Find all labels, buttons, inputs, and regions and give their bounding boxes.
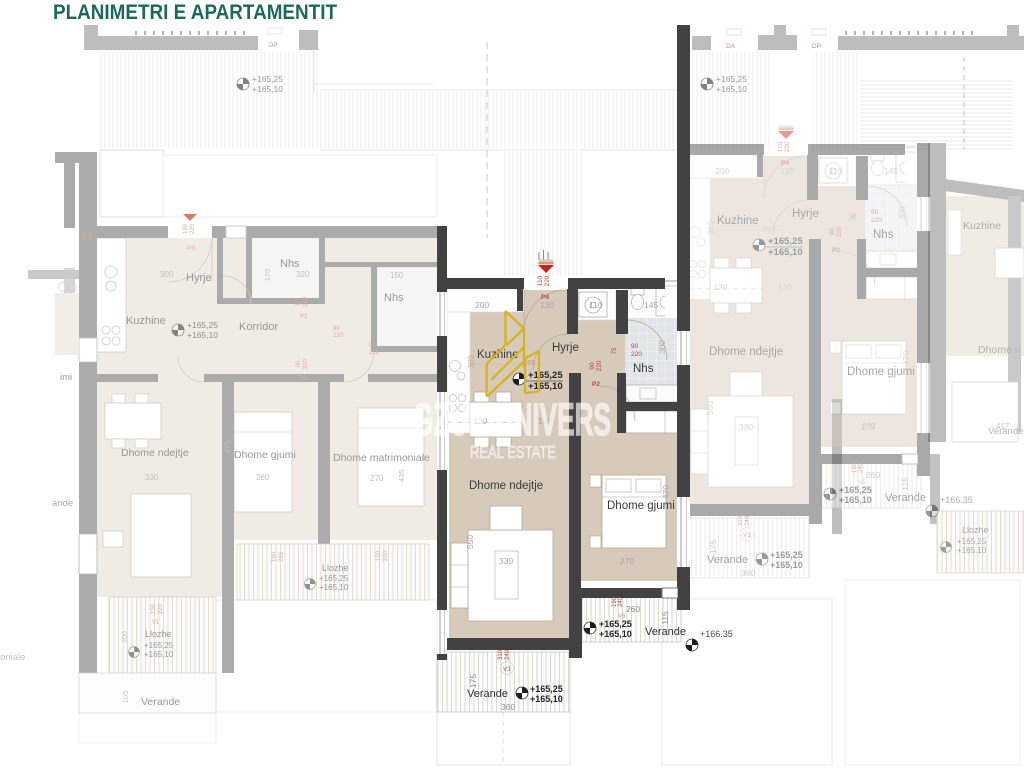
svg-text:+165,10: +165,10: [252, 84, 283, 94]
svg-text:320: 320: [296, 270, 310, 279]
svg-text:Llozhe: Llozhe: [145, 629, 172, 639]
svg-text:P2: P2: [300, 376, 308, 382]
svg-text:Dhome ndejtje: Dhome ndejtje: [121, 447, 189, 459]
svg-text:Llozhe: Llozhe: [962, 525, 989, 535]
svg-text:+165,10: +165,10: [144, 650, 174, 659]
svg-text:170: 170: [263, 269, 272, 282]
svg-text:220: 220: [279, 551, 285, 562]
svg-text:P3: P3: [187, 245, 195, 252]
svg-text:imi: imi: [60, 372, 72, 383]
svg-text:Korridor: Korridor: [239, 321, 278, 333]
svg-text:90: 90: [369, 343, 376, 349]
svg-text:190: 190: [151, 603, 157, 614]
svg-text:Hyrje: Hyrje: [186, 272, 212, 284]
svg-text:260: 260: [256, 473, 270, 482]
svg-text:200: 200: [122, 631, 129, 643]
svg-text:435: 435: [397, 470, 406, 483]
svg-text:Kuzhine: Kuzhine: [963, 220, 1001, 232]
svg-text:Dhome gjumi: Dhome gjumi: [234, 449, 296, 461]
svg-text:Verande: Verande: [141, 696, 180, 708]
svg-text:V1: V1: [152, 620, 160, 626]
svg-text:+165,25: +165,25: [957, 537, 987, 546]
svg-text:REAL ESTATE: REAL ESTATE: [470, 442, 556, 462]
svg-text:+165,10: +165,10: [319, 583, 349, 592]
svg-text:90: 90: [296, 298, 302, 305]
svg-text:Llozhe: Llozhe: [322, 563, 349, 573]
svg-text:+165,25: +165,25: [252, 74, 283, 84]
svg-text:90: 90: [333, 326, 340, 332]
svg-text:+165,25: +165,25: [319, 574, 349, 583]
svg-text:DP: DP: [269, 43, 277, 49]
svg-text:DA: DA: [726, 43, 736, 50]
svg-text:oniale: oniale: [0, 652, 25, 663]
svg-text:190: 190: [272, 551, 278, 562]
svg-text:+165,10: +165,10: [957, 546, 987, 555]
svg-text:90: 90: [296, 360, 302, 367]
svg-text:475: 475: [223, 441, 232, 454]
svg-text:P2: P2: [300, 314, 308, 320]
svg-text:Dhome n: Dhome n: [978, 344, 1021, 356]
svg-text:+165,25: +165,25: [144, 641, 174, 650]
svg-text:190: 190: [183, 223, 189, 234]
svg-text:220: 220: [303, 358, 309, 369]
svg-text:+165,10: +165,10: [716, 84, 747, 94]
svg-text:220: 220: [303, 296, 309, 307]
svg-text:Nhs: Nhs: [280, 258, 300, 270]
svg-text:Kuzhine: Kuzhine: [126, 315, 166, 327]
svg-text:PLANIMETRI E APARTAMENTIT: PLANIMETRI E APARTAMENTIT: [53, 0, 337, 24]
svg-text:Dhome matrimoniale: Dhome matrimoniale: [333, 452, 430, 464]
svg-text:DP: DP: [812, 43, 821, 50]
svg-text:GZUR UNIVERS: GZUR UNIVERS: [413, 394, 611, 445]
svg-text:Nhs: Nhs: [384, 292, 404, 304]
svg-text:220: 220: [190, 223, 196, 234]
svg-text:+165,10: +165,10: [187, 330, 218, 340]
svg-text:Verande: Verande: [988, 426, 1023, 437]
svg-text:327: 327: [988, 188, 1002, 197]
svg-text:220: 220: [88, 231, 94, 240]
svg-text:+165,25: +165,25: [716, 74, 747, 84]
svg-text:+165,25: +165,25: [187, 320, 218, 330]
svg-text:220: 220: [333, 333, 344, 339]
svg-text:ande: ande: [52, 498, 73, 509]
svg-text:105: 105: [121, 691, 130, 704]
svg-text:300: 300: [160, 270, 174, 279]
svg-text:330: 330: [145, 473, 159, 482]
svg-text:220: 220: [158, 603, 164, 614]
svg-text:270: 270: [370, 474, 384, 483]
svg-text:190: 190: [376, 550, 382, 561]
svg-text:150: 150: [390, 271, 404, 280]
svg-text:220: 220: [383, 550, 389, 561]
